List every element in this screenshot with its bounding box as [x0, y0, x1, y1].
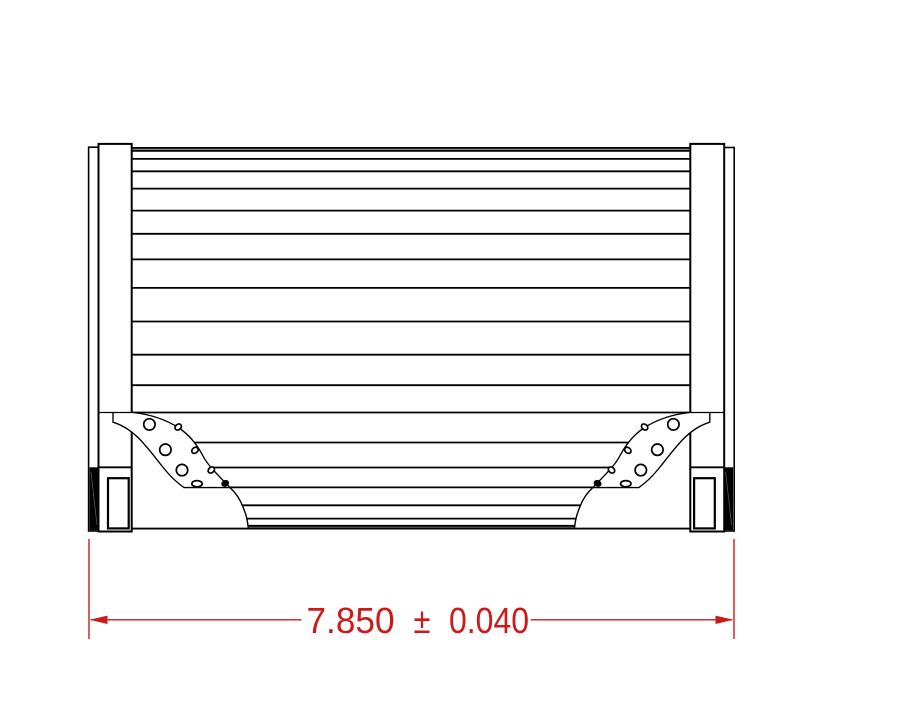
svg-text:±: ± [414, 600, 431, 641]
svg-text:0.040: 0.040 [449, 600, 529, 641]
svg-text:7.850: 7.850 [307, 600, 395, 641]
